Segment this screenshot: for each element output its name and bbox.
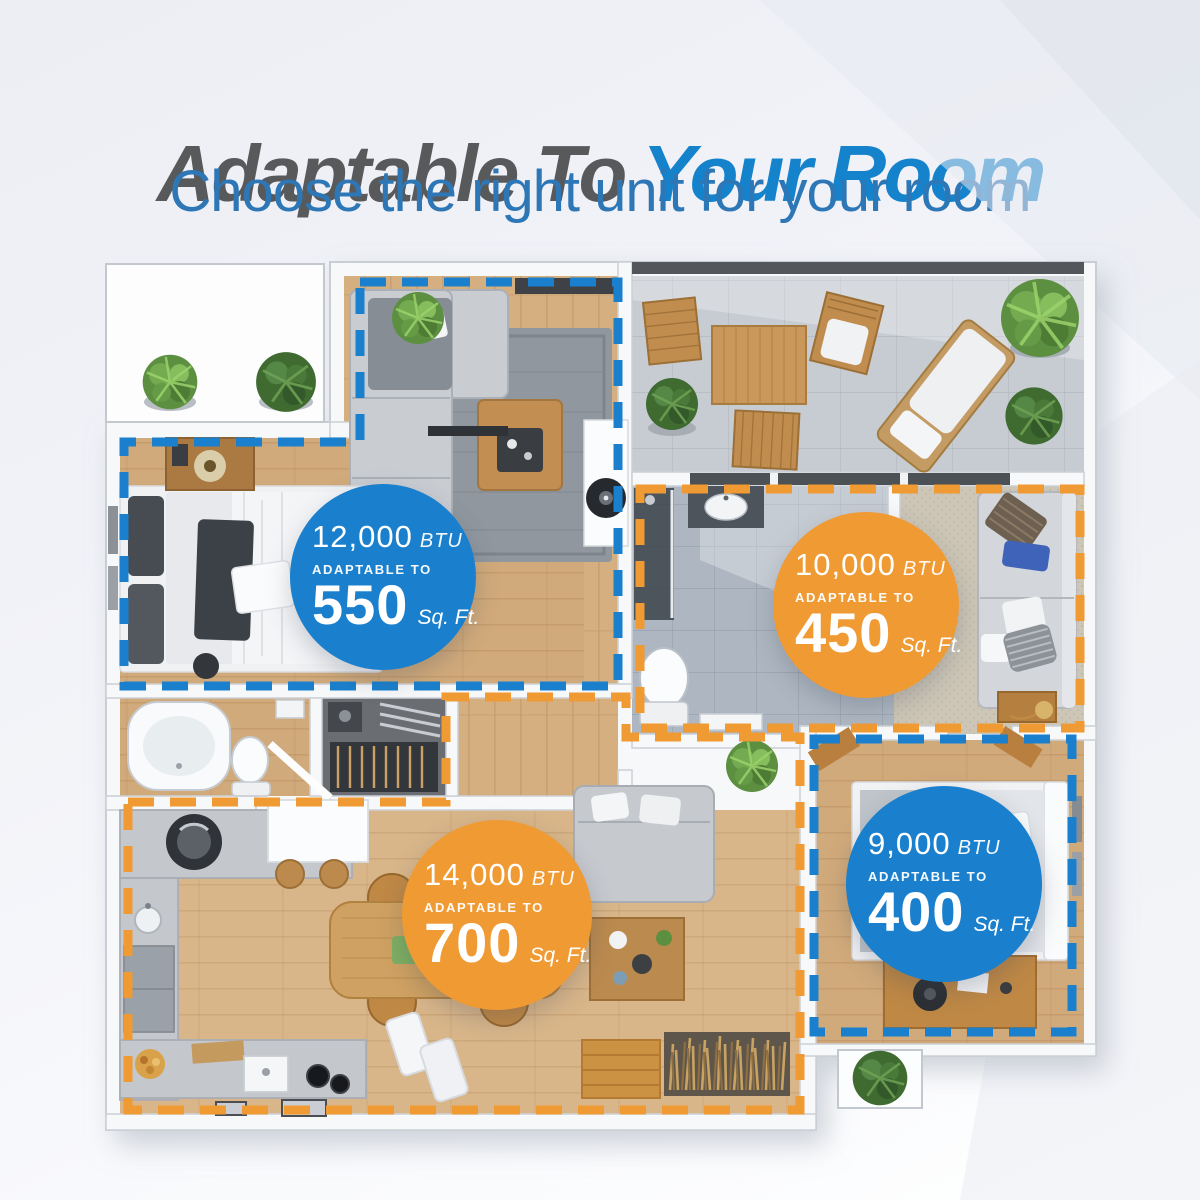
plant-icon bbox=[392, 292, 444, 344]
sink bbox=[276, 700, 304, 718]
toilet bbox=[232, 737, 270, 796]
btu-value: 12,000BTU bbox=[312, 519, 472, 555]
fruit-bowl bbox=[135, 1049, 165, 1079]
entry-planter bbox=[838, 1050, 922, 1108]
record-console bbox=[584, 420, 628, 546]
plant-icon bbox=[726, 740, 778, 792]
toilet bbox=[640, 648, 688, 726]
floor-plan bbox=[0, 0, 1200, 1200]
btu-value: 14,000BTU bbox=[424, 857, 588, 893]
sqft-unit: Sq. Ft. bbox=[417, 606, 479, 630]
sqft-unit: Sq. Ft. bbox=[900, 634, 962, 658]
wall-tv bbox=[428, 426, 508, 436]
badge-bath-bedroom: 10,000BTU ADAPTABLE TO 450Sq. Ft. bbox=[773, 512, 959, 698]
bedroom-right bbox=[978, 491, 1076, 722]
btu-unit: BTU bbox=[532, 868, 575, 890]
hallway-floor bbox=[458, 698, 618, 796]
badge-kitchen-dining: 14,000BTU ADAPTABLE TO 700Sq. Ft. bbox=[402, 820, 592, 1010]
btu-unit: BTU bbox=[420, 530, 463, 552]
side-table bbox=[590, 918, 684, 1000]
badge-office-bedroom: 9,000BTU ADAPTABLE TO 400Sq. Ft. bbox=[846, 786, 1042, 982]
stool bbox=[193, 653, 219, 679]
plant-icon bbox=[143, 355, 198, 410]
outdoor-planter-ledge bbox=[106, 264, 324, 422]
sqft-unit: Sq. Ft. bbox=[529, 944, 591, 968]
shower bbox=[634, 488, 674, 620]
daybed bbox=[978, 491, 1076, 708]
nightstand bbox=[998, 692, 1056, 722]
adaptable-label: ADAPTABLE TO bbox=[424, 900, 588, 915]
plant-icon bbox=[646, 378, 698, 430]
lounge-sofa bbox=[574, 786, 714, 902]
wall-art bbox=[108, 566, 118, 610]
prep-sink bbox=[135, 907, 161, 933]
adaptable-label: ADAPTABLE TO bbox=[312, 562, 472, 577]
sqft-value: 400 bbox=[868, 882, 964, 942]
plant-icon bbox=[1005, 387, 1062, 444]
wall-art bbox=[108, 506, 118, 554]
sqft-unit: Sq. Ft. bbox=[973, 913, 1035, 937]
badge-living-bedroom: 12,000BTU ADAPTABLE TO 550Sq. Ft. bbox=[290, 484, 476, 670]
btu-unit: BTU bbox=[958, 837, 1001, 859]
pot bbox=[307, 1065, 329, 1087]
terrace-railing bbox=[632, 262, 1084, 274]
sqft-value: 700 bbox=[424, 913, 520, 973]
sliding-glass-door bbox=[690, 473, 1010, 485]
wood-crate bbox=[582, 1040, 660, 1098]
btu-value: 10,000BTU bbox=[795, 547, 955, 583]
plant-icon bbox=[1001, 279, 1079, 357]
adaptable-label: ADAPTABLE TO bbox=[868, 869, 1038, 884]
terrace-chair bbox=[643, 297, 701, 364]
pot bbox=[331, 1075, 349, 1093]
adaptable-label: ADAPTABLE TO bbox=[795, 590, 955, 605]
plant-icon bbox=[256, 352, 316, 412]
sqft-value: 550 bbox=[312, 575, 408, 635]
cutting-board bbox=[191, 1040, 244, 1064]
terrace-bench bbox=[733, 410, 800, 469]
grass-planter bbox=[664, 1032, 790, 1096]
sqft-value: 450 bbox=[795, 603, 891, 663]
btu-unit: BTU bbox=[903, 558, 946, 580]
btu-value: 9,000BTU bbox=[868, 826, 1038, 862]
terrace-dining-table bbox=[712, 326, 806, 404]
plant-icon bbox=[853, 1051, 908, 1106]
coffee-table bbox=[478, 400, 562, 490]
